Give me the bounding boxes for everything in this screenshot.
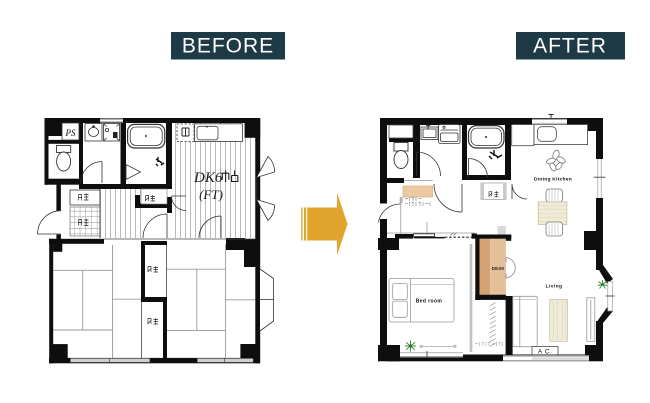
- svg-text:BEFORE: BEFORE: [182, 35, 274, 58]
- svg-text:DK6: DK6: [193, 170, 223, 186]
- svg-text:(FT): (FT): [199, 187, 223, 202]
- svg-text:Living: Living: [546, 284, 563, 290]
- svg-text:AFTER: AFTER: [533, 35, 607, 58]
- svg-text:PS: PS: [65, 128, 76, 138]
- svg-text:AC: AC: [538, 349, 552, 356]
- svg-text:Bed room: Bed room: [416, 298, 443, 304]
- svg-text:Dining Kitchen: Dining Kitchen: [534, 177, 572, 183]
- svg-text:DESK: DESK: [492, 266, 506, 271]
